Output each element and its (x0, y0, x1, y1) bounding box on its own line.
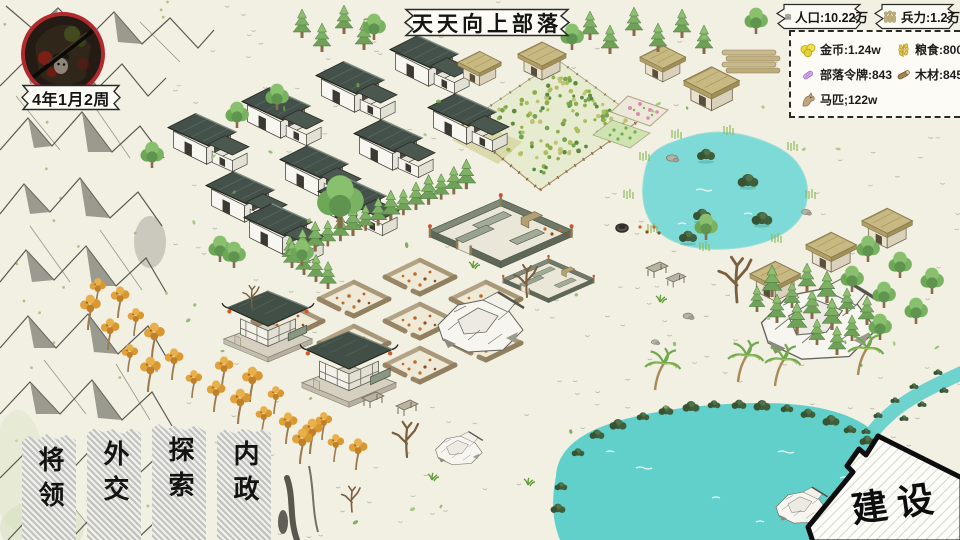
token-resource: 部落令牌:843 (800, 65, 895, 84)
menu-label: 将领 (36, 446, 62, 540)
token-value: 部落令牌:843 (820, 66, 892, 83)
troops-icon (882, 9, 898, 25)
tribe-banner: 天天向上部落 (388, 7, 586, 38)
main-menu: 将领 外交 探索 内政 (22, 416, 271, 540)
menu-item-diplomacy[interactable]: 外交 (87, 428, 141, 540)
token-icon (800, 67, 816, 83)
gold-icon (800, 42, 816, 58)
population-stat: 人口:10.22万 (771, 3, 868, 30)
food-icon (895, 42, 911, 58)
food-resource: 粮食:8000 (895, 40, 960, 59)
upper-lake (643, 132, 808, 249)
population-icon (784, 9, 792, 25)
horse-resource: 马匹;122w (800, 90, 895, 109)
menu-item-generals[interactable]: 将领 (22, 434, 76, 540)
build-button[interactable]: 建设 (760, 398, 960, 540)
troops-stat: 兵力:1.2万 (869, 3, 960, 30)
menu-label: 外交 (101, 440, 127, 540)
food-value: 粮食:8000 (915, 41, 960, 58)
troops-value: 兵力:1.2万 (901, 7, 960, 26)
courtyards[interactable] (428, 193, 595, 302)
game-date: 4年1月2周 (15, 84, 127, 111)
well[interactable] (616, 224, 628, 232)
wood-icon (895, 67, 911, 83)
resource-panel: 金币:1.24w 粮食:8000 部落令牌:843 木材:845w (789, 30, 960, 118)
population-value: 人口:10.22万 (795, 7, 868, 26)
log-pile[interactable] (722, 50, 780, 73)
wood-value: 木材:845w (915, 66, 960, 83)
date-text: 4年1月2周 (32, 86, 110, 110)
menu-item-explore[interactable]: 探索 (152, 424, 206, 540)
tribe-name: 天天向上部落 (412, 8, 562, 38)
stats-bar: 人口:10.22万 兵力:1.2万 (771, 3, 960, 30)
horse-value: 马匹;122w (820, 91, 877, 108)
menu-item-internal-affairs[interactable]: 内政 (217, 428, 271, 540)
avatar-portrait (25, 16, 101, 92)
gold-value: 金币:1.24w (820, 41, 881, 58)
gold-resource: 金币:1.24w (800, 40, 895, 59)
menu-label: 探索 (166, 436, 192, 540)
wood-resource: 木材:845w (895, 65, 960, 84)
menu-label: 内政 (231, 440, 257, 540)
horse-icon (800, 92, 816, 108)
game-screen: 4年1月2周 天天向上部落 人口:10.22万 兵力:1.2万 (0, 0, 960, 540)
